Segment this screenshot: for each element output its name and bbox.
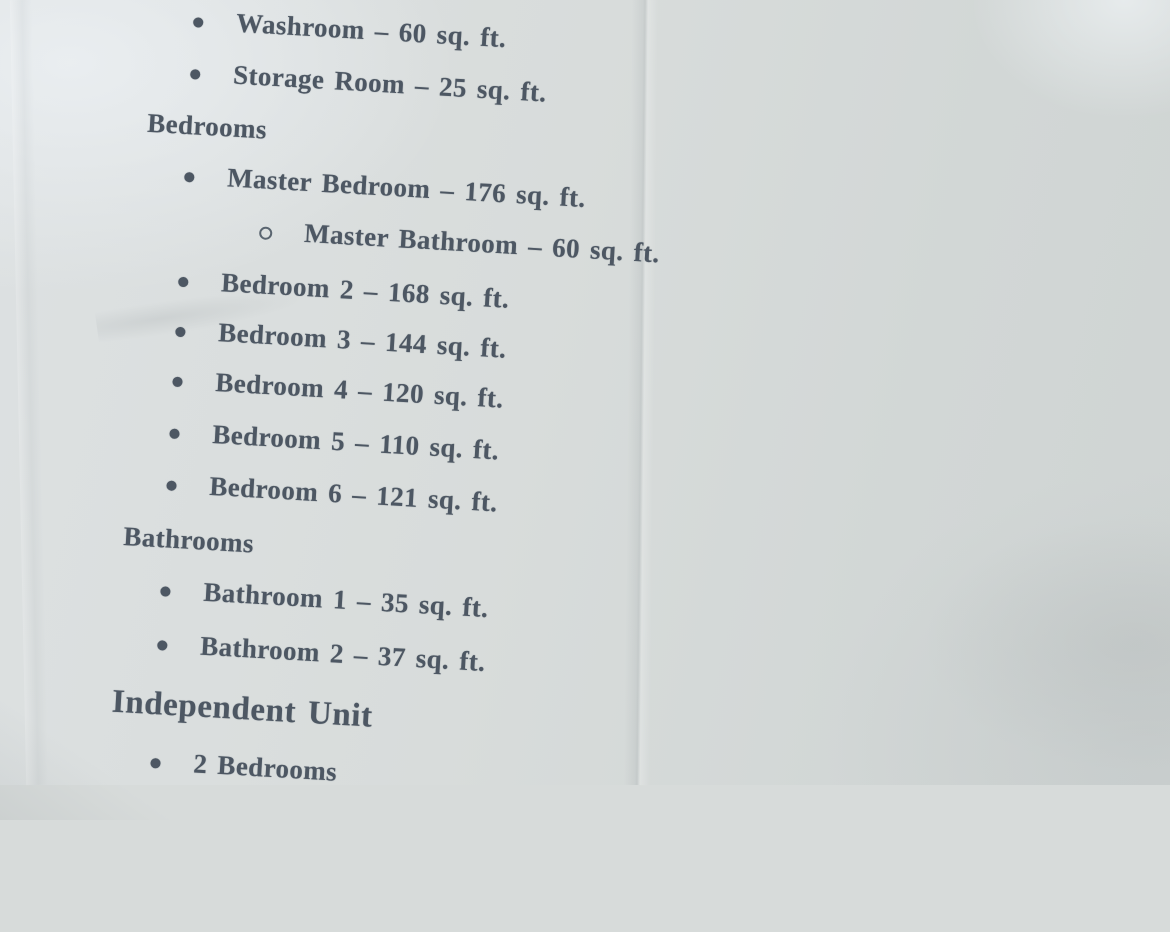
document-photo: Washroom – 60 sq. ft. Storage Room – 25 …: [0, 0, 1170, 785]
list-item-label: 2 Bedrooms: [193, 748, 756, 811]
bullet-dot-icon: [160, 586, 171, 597]
bullet-dot-icon: [157, 640, 168, 651]
bullet-circle-icon: [259, 226, 273, 240]
list-item-label: Washroom – 60 sq. ft.: [235, 8, 798, 71]
section-title-label: Independent Unit: [111, 684, 759, 758]
paper-highlight-corner: [970, 0, 1170, 120]
bullet-dot-icon: [172, 377, 183, 388]
printed-text-block: Washroom – 60 sq. ft. Storage Room – 25 …: [0, 0, 819, 932]
bullet-dot-icon: [193, 17, 204, 28]
bullet-dot-icon: [175, 327, 186, 338]
bullet-dot-icon: [190, 69, 201, 80]
bullet-dot-icon: [166, 480, 177, 491]
bullet-dot-icon: [169, 429, 180, 440]
bullet-dot-icon: [150, 758, 161, 769]
list-item-label: Master Bathroom – 60 sq. ft.: [303, 218, 786, 277]
bullet-dot-icon: [178, 277, 189, 288]
bullet-dot-icon: [184, 172, 195, 183]
